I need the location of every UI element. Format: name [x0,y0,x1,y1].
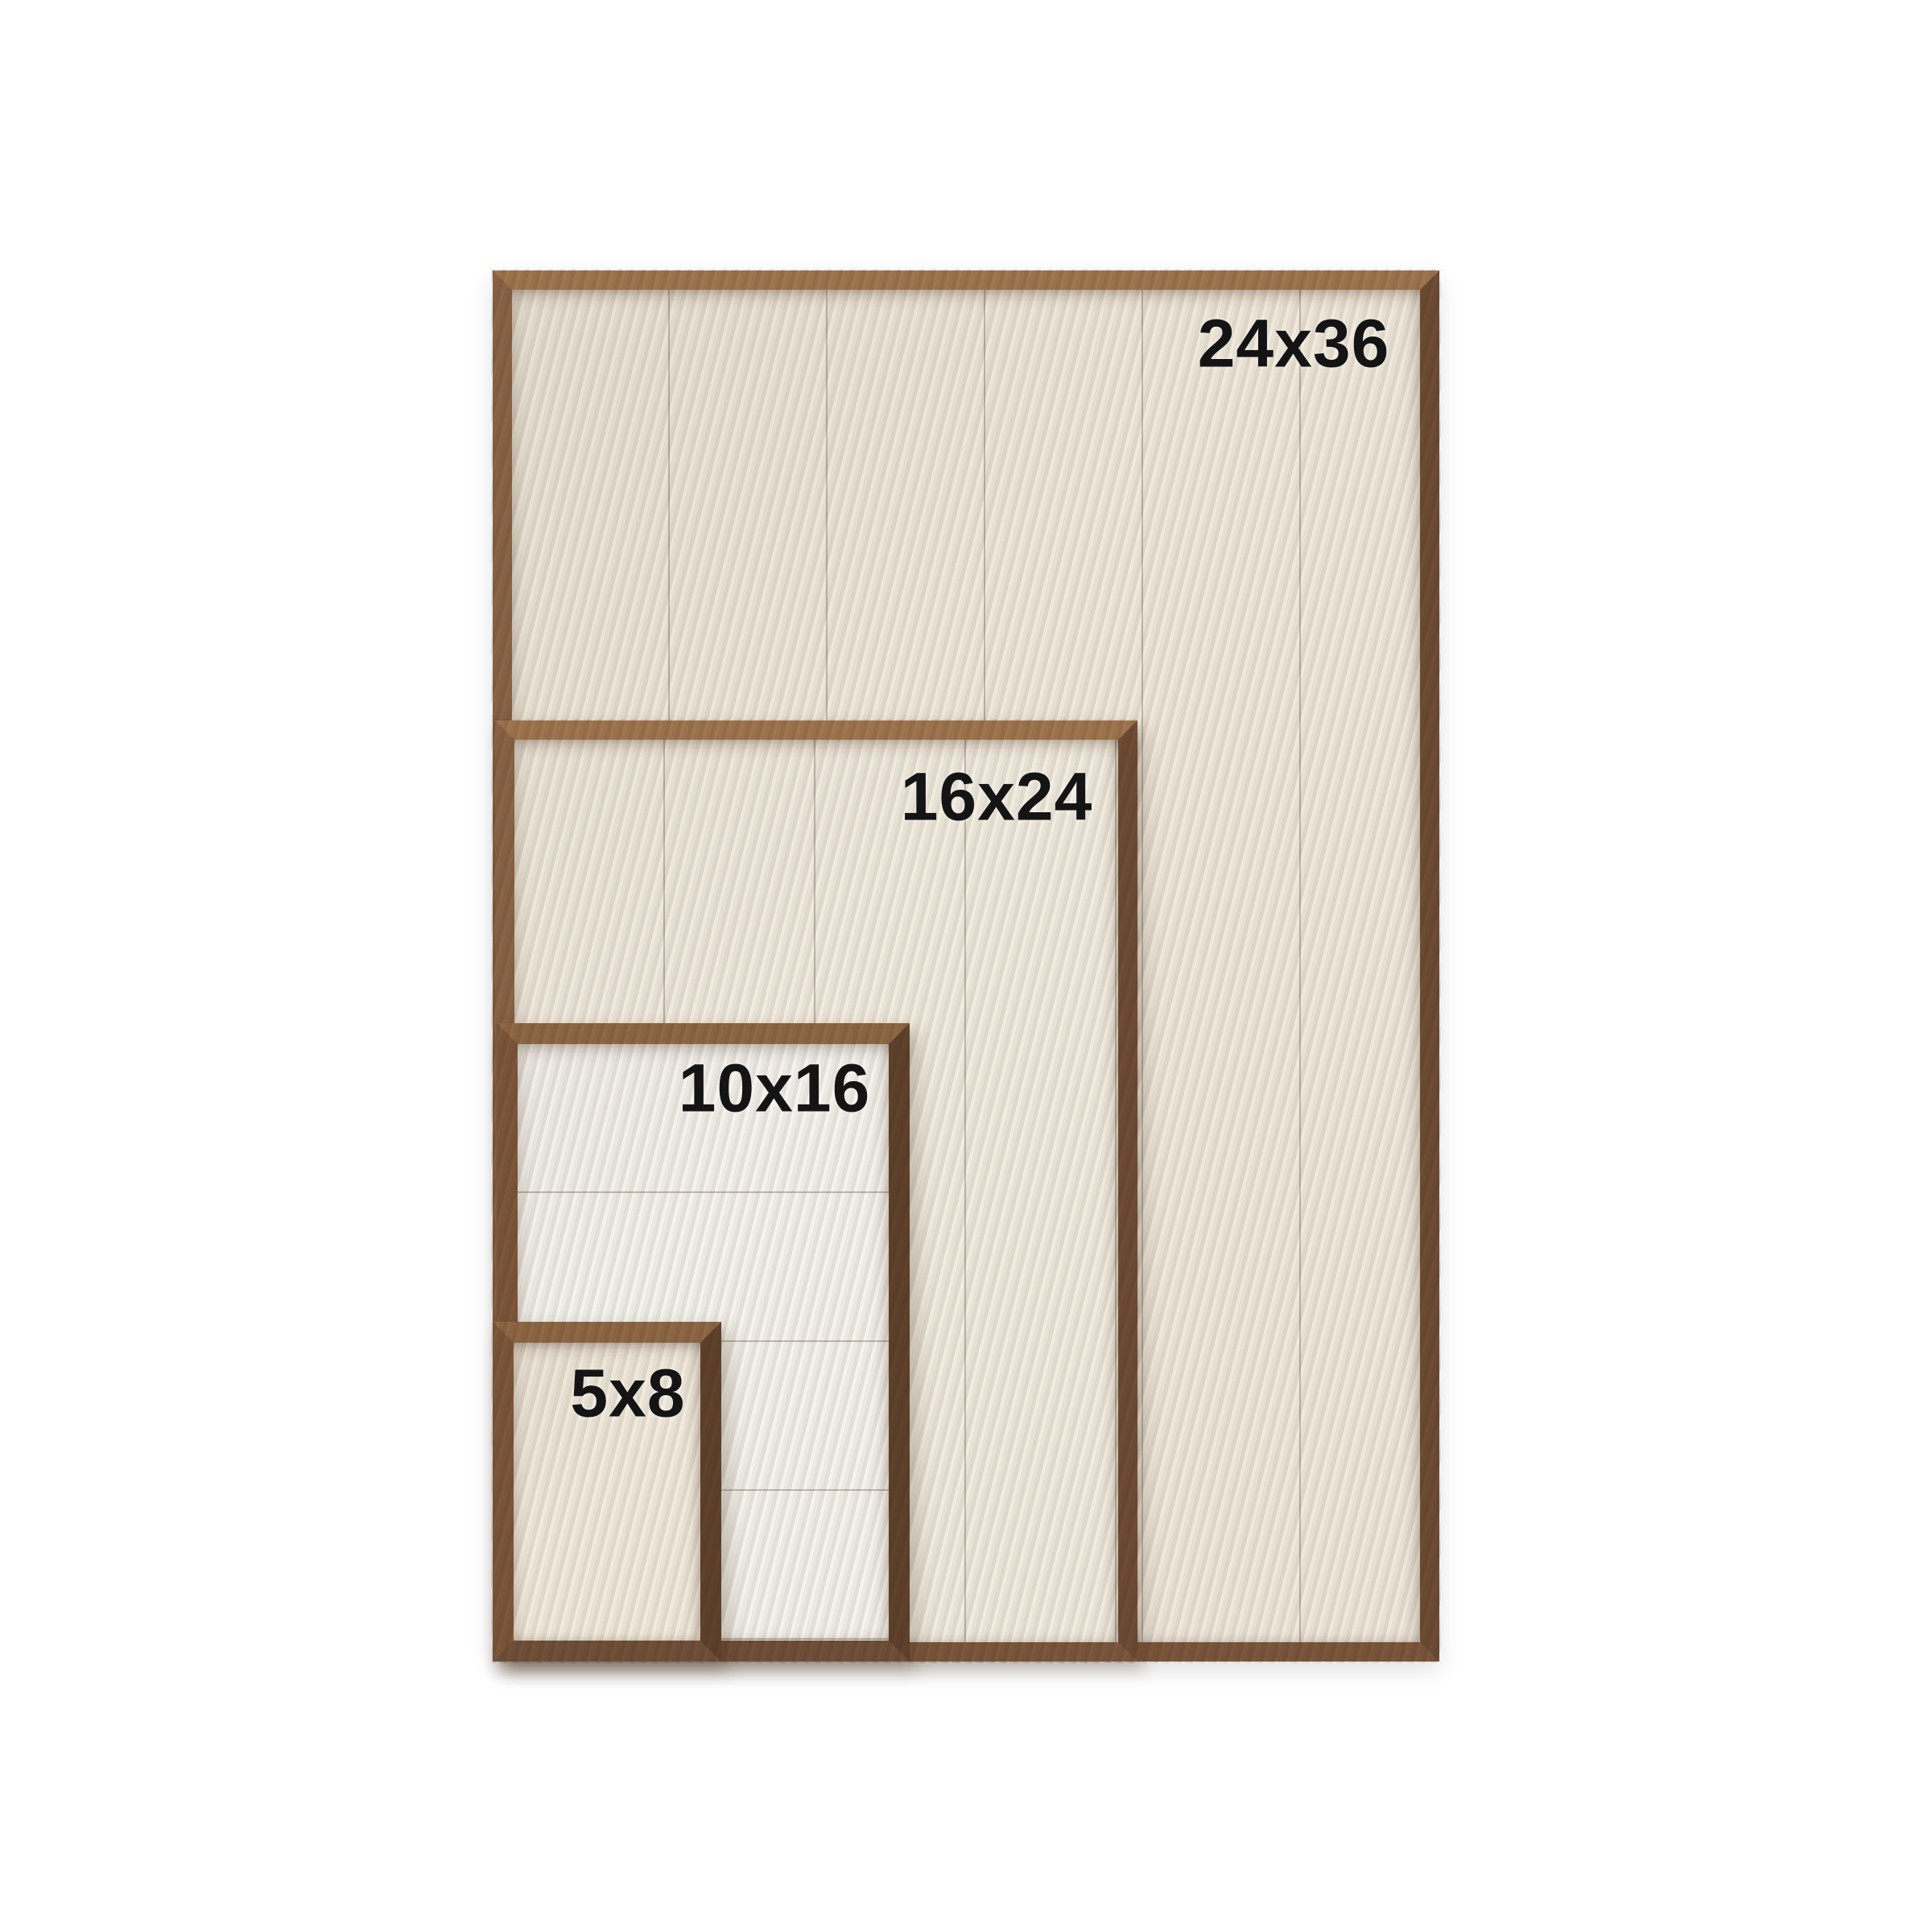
size-label-5x8: 5x8 [570,1355,685,1433]
size-label-10x16: 10x16 [679,1050,871,1128]
size-comparison-image: 24x36 16x24 10x16 5x8 [0,0,1932,1932]
size-label-24x36: 24x36 [1198,305,1390,383]
size-label-16x24: 16x24 [901,758,1093,836]
